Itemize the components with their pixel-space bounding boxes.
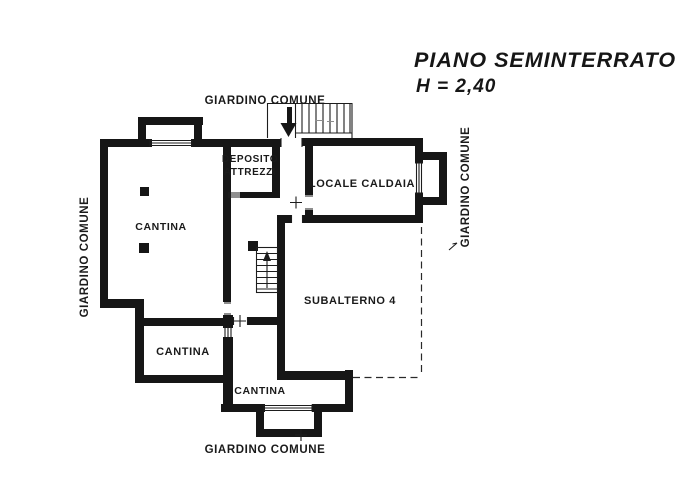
wall-int-h-west xyxy=(137,318,225,326)
wall-bay-b-bottom xyxy=(256,429,322,437)
wall-bay-tl-top xyxy=(138,117,203,125)
plan-labels: PIANO SEMINTERRATO H = 2,40 GIARDINO COM… xyxy=(79,48,675,456)
garden-label-left: GIARDINO COMUNE xyxy=(79,197,91,318)
garden-label-top: GIARDINO COMUNE xyxy=(205,95,326,107)
wall-deposito-bottom xyxy=(240,192,280,198)
pillar-icon xyxy=(140,187,149,196)
wall-top-mid xyxy=(191,139,281,147)
room-label-subalterno: SUBALTERNO 4 xyxy=(304,295,396,307)
wall-bay-r-bottom xyxy=(423,197,447,205)
wall-sub-bottom xyxy=(277,371,347,380)
floor-plan-page: PIANO SEMINTERRATO H = 2,40 GIARDINO COM… xyxy=(0,0,675,477)
wall-top-east xyxy=(302,138,423,146)
room-label-deposito-2: ATTREZZI xyxy=(224,167,276,178)
room-label-cantina-s: CANTINA xyxy=(234,385,285,397)
stair-rail-lines xyxy=(268,104,353,139)
floor-plan-drawing: PIANO SEMINTERRATO H = 2,40 GIARDINO COM… xyxy=(0,0,675,477)
wall-caldaia-right-s xyxy=(415,193,423,223)
wall-caldaia-left-s xyxy=(305,210,313,223)
wall-mid-v-lower xyxy=(223,337,233,412)
floor-height-label: H = 2,40 xyxy=(416,76,496,97)
pillar-icon xyxy=(139,243,149,253)
wall-mid-h-west xyxy=(277,215,291,223)
entrance-stair xyxy=(268,104,353,139)
page-title: PIANO SEMINTERRATO xyxy=(414,48,675,72)
door-icon xyxy=(224,303,231,314)
door-icon xyxy=(281,138,302,147)
room-label-cantina-sw: CANTINA xyxy=(156,346,210,358)
cross-mark-icon xyxy=(290,197,302,209)
stair-tread-ticks xyxy=(302,104,350,133)
entrance-arrow-icon xyxy=(281,107,297,137)
room-label-caldaia: LOCALE CALDAIA xyxy=(309,178,415,190)
window-icon xyxy=(150,139,192,147)
cross-mark-icon xyxy=(234,315,246,327)
door-icon xyxy=(292,215,303,223)
wall-sub-left xyxy=(277,215,285,380)
wall-sw-bottom xyxy=(135,375,225,383)
wall-mid-h-east xyxy=(303,215,423,223)
room-label-cantina-main: CANTINA xyxy=(135,221,186,233)
door-icon xyxy=(305,196,313,209)
window-icon xyxy=(264,405,312,412)
wall-step-v xyxy=(135,299,144,383)
interior-stairs-icon xyxy=(257,248,278,293)
garden-label-bottom: GIARDINO COMUNE xyxy=(205,444,326,456)
window-icon xyxy=(415,163,423,193)
room-label-deposito-1: DEPOSITO xyxy=(222,154,278,165)
garden-label-right: GIARDINO COMUNE xyxy=(460,127,472,248)
stair-scribble xyxy=(315,121,334,122)
wall-caldaia-right-n xyxy=(415,138,423,163)
leader-tick-icon xyxy=(449,243,457,250)
wall-int-h-east xyxy=(248,317,285,325)
wall-left xyxy=(100,139,108,307)
